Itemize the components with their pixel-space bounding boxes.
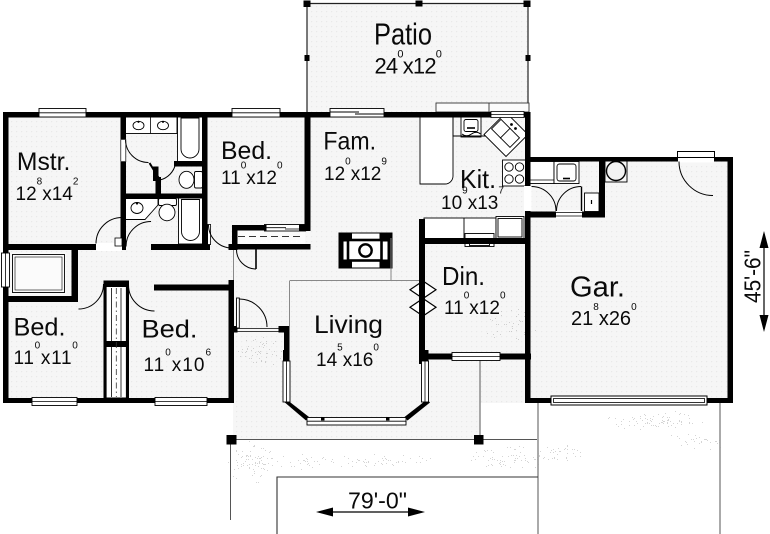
svg-text:240x120: 240x120 bbox=[375, 49, 442, 79]
svg-text:Mstr.: Mstr. bbox=[17, 148, 71, 176]
svg-text:Fam.: Fam. bbox=[323, 128, 376, 156]
svg-text:Patio: Patio bbox=[374, 17, 432, 52]
svg-text:Din.: Din. bbox=[442, 261, 485, 291]
svg-text:Gar.: Gar. bbox=[570, 272, 625, 304]
svg-text:Bed.: Bed. bbox=[14, 314, 66, 342]
svg-text:Bed.: Bed. bbox=[142, 316, 198, 344]
svg-text:45'-6": 45'-6" bbox=[740, 250, 766, 303]
svg-text:Bed.: Bed. bbox=[221, 137, 272, 165]
svg-text:79'-0": 79'-0" bbox=[348, 488, 407, 514]
svg-text:Living: Living bbox=[314, 311, 383, 339]
